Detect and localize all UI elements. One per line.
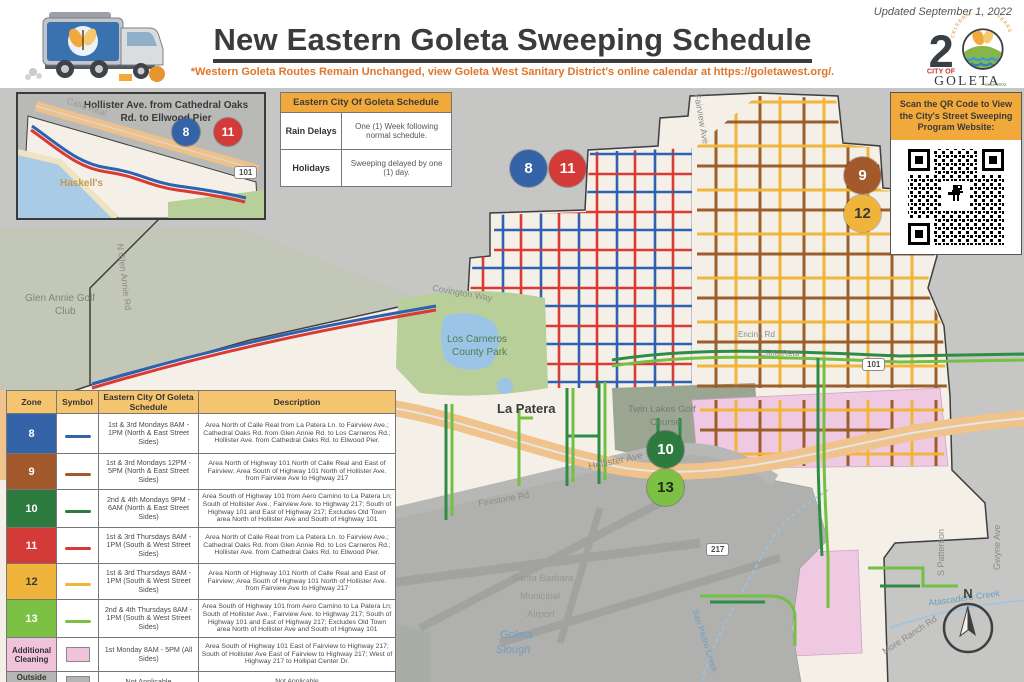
zone-label: Outside City Limits [7,672,57,682]
legend-row-zone-9: 9 1st & 3rd Mondays 12PM - 5PM (North & … [7,454,396,490]
inset-badge-zone-8: 8 [172,118,200,146]
outside-city-symbol-swatch [66,676,90,682]
inset-map: Hollister Ave. from Cathedral Oaks Rd. t… [16,92,266,220]
rain-delays-label: Rain Delays [281,113,342,150]
zone-label: Additional Cleaning [7,638,57,672]
map-badge-zone-10: 10 [647,431,684,468]
zone-number: 13 [7,600,57,638]
zone-number: 12 [7,564,57,600]
page-title: New Eastern Goleta Sweeping Schedule [213,22,811,63]
zone-number: 8 [7,414,57,454]
map-label-gwyne-ave: Gwyne Ave [992,525,1002,570]
legend-header-zone: Zone [7,391,57,414]
outside-city-description: Not Applicable [199,672,396,682]
zone-11-schedule: 1st & 3rd Thursdays 8AM - 1PM (South & W… [99,528,199,564]
legend-header-row: Zone Symbol Eastern City Of Goleta Sched… [7,391,396,414]
zone-9-symbol-line [65,473,91,476]
highway-217-shield: 217 [706,543,729,556]
additional-cleaning-symbol-swatch [66,647,90,662]
page-subtitle: *Western Goleta Routes Remain Unchanged,… [185,66,840,78]
zone-9-description: Area North of Highway 101 North of Calle… [199,454,396,490]
logo-since: since 2002 [985,82,1007,87]
compass-rose: N [938,584,998,658]
schedule-table: Eastern City Of Goleta Schedule Rain Del… [280,92,452,187]
zone-12-symbol-line [65,583,91,586]
map-label-los-carneros: Los Carneros [447,334,507,345]
legend-header-symbol: Symbol [57,391,99,414]
zone-13-schedule: 2nd & 4th Thursdays 8AM - 1PM (South & W… [99,600,199,638]
legend-row-zone-10: 10 2nd & 4th Mondays 9PM - 6AM (North & … [7,490,396,528]
outside-city-schedule: Not Applicable [99,672,199,682]
title-block: New Eastern Goleta Sweeping Schedule *We… [185,22,840,78]
zone-10-symbol-line [65,510,91,513]
header: New Eastern Goleta Sweeping Schedule *We… [0,0,1024,88]
goleta-logo: CELEBRATING 20 YEARS 2 CITY OF GOLETA si… [922,13,1022,87]
legend-row-additional-cleaning: Additional Cleaning 1st Monday 8AM - 5PM… [7,638,396,672]
map-label-airport-1: Santa Barbara [512,573,573,584]
legend-header-schedule: Eastern City Of Goleta Schedule [99,391,199,414]
map-label-twin-lakes: Twin Lakes Golf [628,404,696,415]
map-label-goleta-slough-1: Goleta [500,629,532,641]
zone-10-description: Area South of Highway 101 from Aero Cami… [199,490,396,528]
additional-cleaning-schedule: 1st Monday 8AM - 5PM (All Sides) [99,638,199,672]
inset-highway-101-shield: 101 [234,166,257,179]
schedule-table-title: Eastern City Of Goleta Schedule [281,93,452,113]
zone-11-symbol-line [65,547,91,550]
map-label-glen-annie-golf: Glen Annie Golf [25,293,95,304]
legend-row-outside-city-limits: Outside City Limits Not Applicable Not A… [7,672,396,682]
zone-12-description: Area North of Highway 101 North of Calle… [199,564,396,600]
legend-table: Zone Symbol Eastern City Of Goleta Sched… [6,390,396,682]
map-label-airport-2: Municipal [520,591,560,602]
map-label-calle-real: Calle Real [760,348,799,358]
zone-number: 9 [7,454,57,490]
zone-12-schedule: 1st & 3rd Thursdays 8AM - 1PM (South & W… [99,564,199,600]
map-label-encina-rd: Encina Rd [738,330,775,339]
flyer-page: New Eastern Goleta Sweeping Schedule *We… [0,0,1024,682]
zone-9-schedule: 1st & 3rd Mondays 12PM - 5PM (North & Ea… [99,454,199,490]
highway-101-shield: 101 [862,358,885,371]
sweeping-map: Covington Way Los Carneros County Park G… [0,88,1024,682]
holidays-value: Sweeping delayed by one (1) day. [342,150,452,187]
sweeper-truck-illustration [15,6,165,86]
map-badge-zone-13: 13 [647,469,684,506]
zone-13-symbol-line [65,620,91,623]
zone-8-description: Area North of Calle Real from La Patera … [199,414,396,454]
table-row: Holidays Sweeping delayed by one (1) day… [281,150,452,187]
zone-10-schedule: 2nd & 4th Mondays 9PM - 6AM (North & Eas… [99,490,199,528]
rain-delays-value: One (1) Week following normal schedule. [342,113,452,150]
table-row: Rain Delays One (1) Week following norma… [281,113,452,150]
map-label-s-patterson: S Patterson [936,529,946,576]
zone-8-symbol-line [65,435,91,438]
map-label-twin-lakes-course: Course [650,417,681,428]
additional-cleaning-description: Area South of Highway 101 East of Fairvi… [199,638,396,672]
map-label-la-patera: La Patera [497,401,556,416]
zone-number: 10 [7,490,57,528]
map-badge-zone-8: 8 [510,150,547,187]
qr-code [906,147,1006,247]
map-badge-zone-9: 9 [844,157,881,194]
inset-label-haskells: Haskell's [60,178,103,189]
legend-row-zone-8: 8 1st & 3rd Mondays 8AM - 1PM (North & E… [7,414,396,454]
map-badge-zone-11: 11 [549,150,586,187]
compass-north-label: N [963,586,972,601]
map-label-airport-3: Airport [527,609,555,620]
legend-header-description: Description [199,391,396,414]
map-badge-zone-12: 12 [844,195,881,232]
legend-row-zone-12: 12 1st & 3rd Thursdays 8AM - 1PM (South … [7,564,396,600]
legend-row-zone-11: 11 1st & 3rd Thursdays 8AM - 1PM (South … [7,528,396,564]
qr-box-title: Scan the QR Code to View the City's Stre… [891,93,1021,140]
zone-8-schedule: 1st & 3rd Mondays 8AM - 1PM (North & Eas… [99,414,199,454]
map-label-glen-annie-club: Club [55,306,76,317]
qr-box: Scan the QR Code to View the City's Stre… [890,92,1022,255]
legend-row-zone-13: 13 2nd & 4th Thursdays 8AM - 1PM (South … [7,600,396,638]
zone-11-description: Area North of Calle Real from La Patera … [199,528,396,564]
zone-13-description: Area South of Highway 101 from Aero Cami… [199,600,396,638]
zone-number: 11 [7,528,57,564]
inset-badge-zone-11: 11 [214,118,242,146]
map-label-county-park: County Park [452,347,507,358]
holidays-label: Holidays [281,150,342,187]
map-label-goleta-slough-2: Slough [496,644,530,656]
